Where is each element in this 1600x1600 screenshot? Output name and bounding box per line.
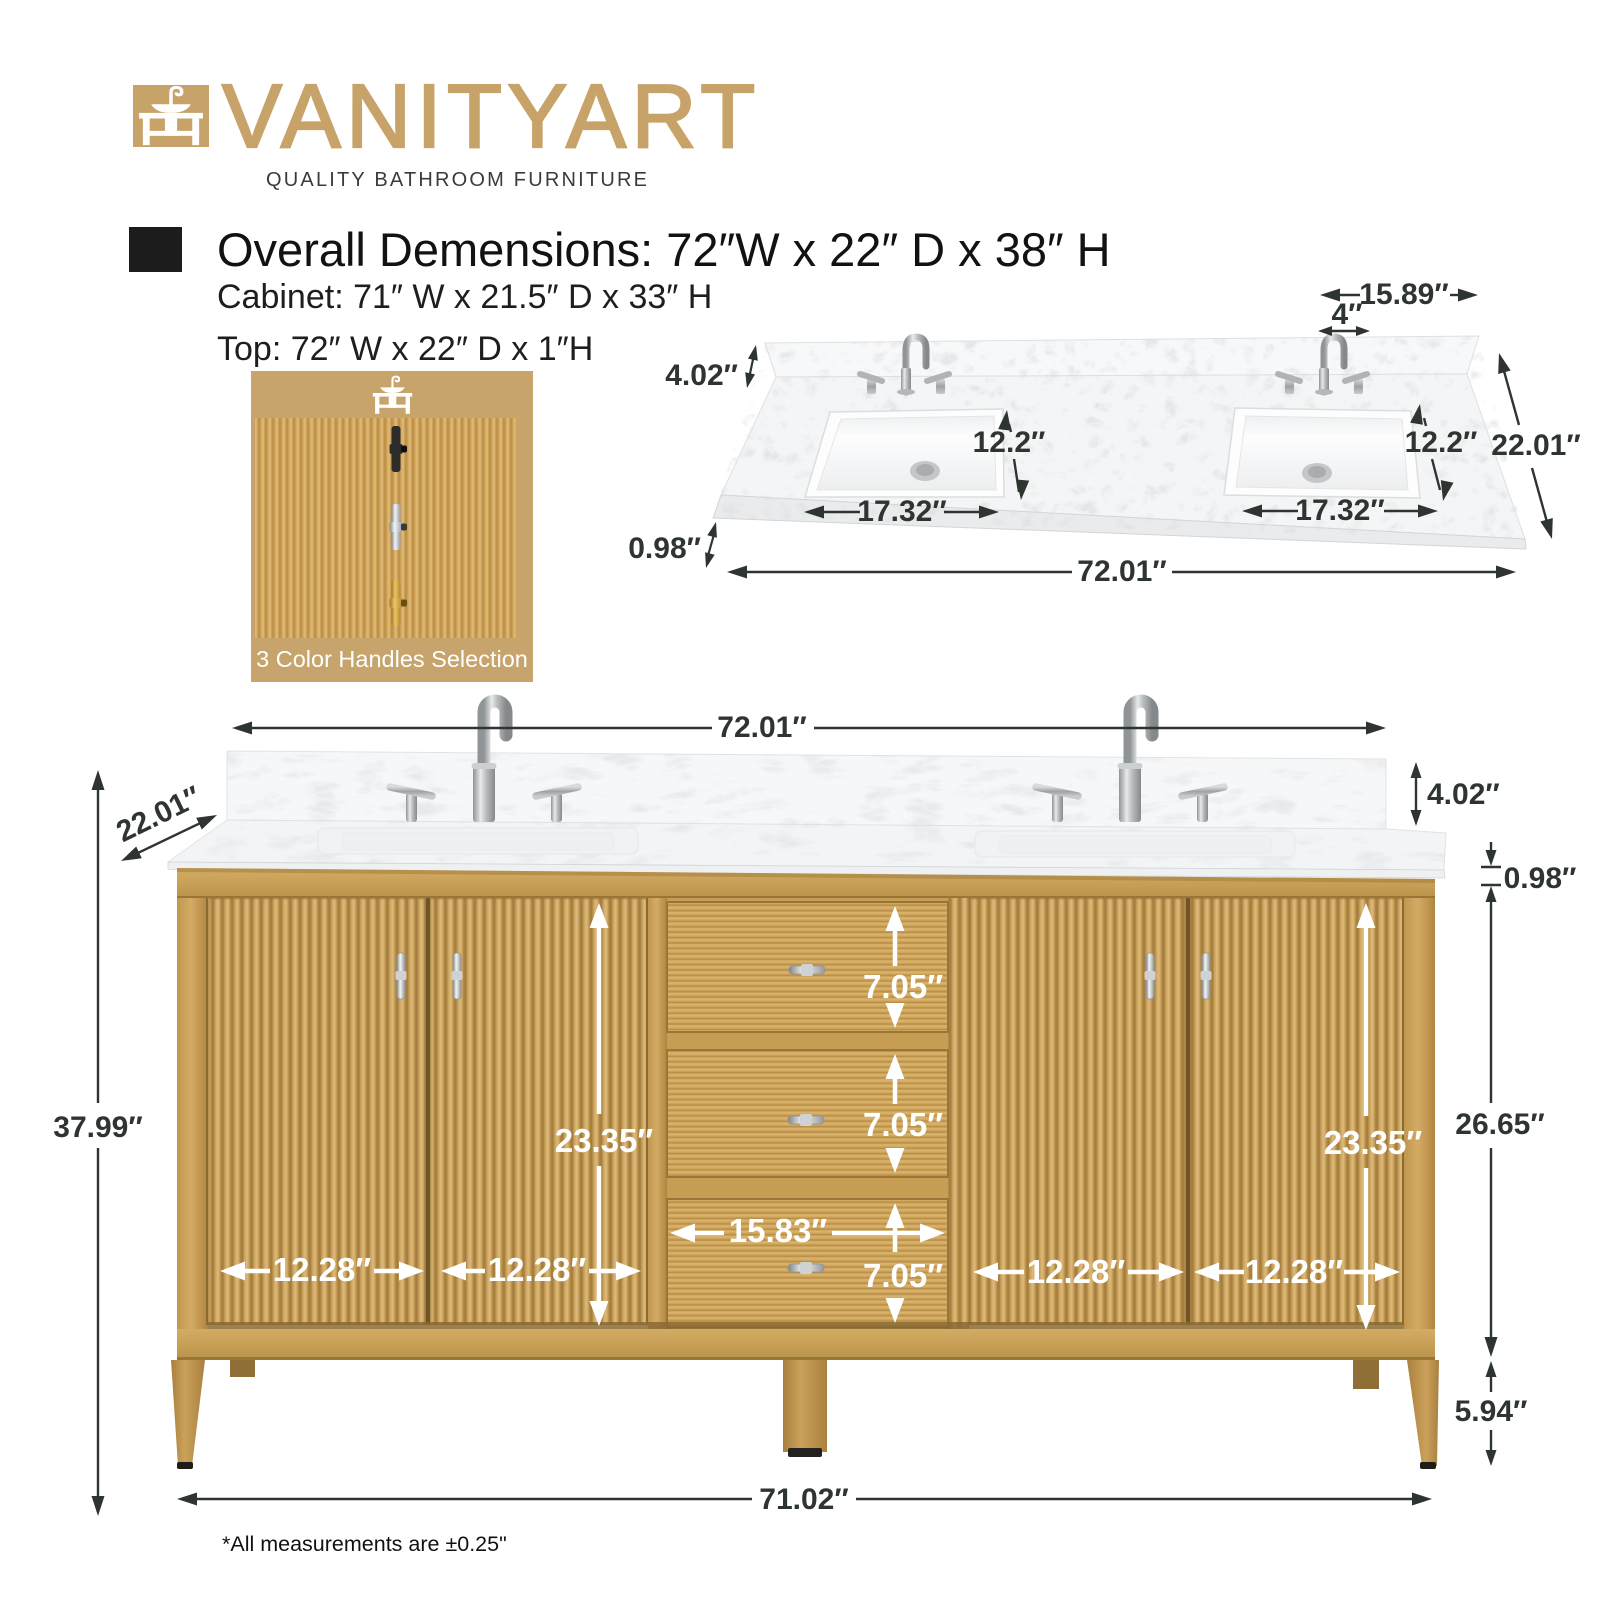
svg-text:3 Color Handles Selection: 3 Color Handles Selection bbox=[256, 646, 528, 672]
svg-text:17.32″: 17.32″ bbox=[857, 495, 946, 528]
svg-text:37.99″: 37.99″ bbox=[53, 1111, 142, 1144]
svg-text:4.02″: 4.02″ bbox=[1427, 778, 1500, 811]
svg-text:12.2″: 12.2″ bbox=[973, 426, 1046, 459]
svg-text:7.05″: 7.05″ bbox=[863, 1106, 943, 1143]
svg-text:15.89″: 15.89″ bbox=[1359, 278, 1448, 311]
svg-text:Top: 72″ W x 22″ D x 1″H: Top: 72″ W x 22″ D x 1″H bbox=[217, 330, 593, 368]
svg-text:*All measurements are ±0.25": *All measurements are ±0.25" bbox=[222, 1532, 507, 1556]
svg-text:12.2″: 12.2″ bbox=[1405, 426, 1478, 459]
svg-text:12.28″: 12.28″ bbox=[1245, 1253, 1344, 1290]
svg-text:26.65″: 26.65″ bbox=[1455, 1108, 1544, 1141]
svg-text:23.35″: 23.35″ bbox=[555, 1122, 654, 1159]
svg-text:VANITYART: VANITYART bbox=[222, 67, 761, 167]
svg-text:Cabinet: 71″ W x 21.5″ D x 33″: Cabinet: 71″ W x 21.5″ D x 33″ H bbox=[217, 278, 712, 316]
svg-text:Overall Demensions: 72″W x 22″: Overall Demensions: 72″W x 22″ D x 38″ H bbox=[217, 223, 1111, 276]
svg-text:22.01″: 22.01″ bbox=[1491, 429, 1580, 462]
svg-text:0.98″: 0.98″ bbox=[628, 532, 701, 565]
svg-text:72.01″: 72.01″ bbox=[717, 711, 806, 744]
svg-text:QUALITY BATHROOM FURNITURE: QUALITY BATHROOM FURNITURE bbox=[266, 169, 649, 191]
svg-text:5.94″: 5.94″ bbox=[1455, 1395, 1528, 1428]
svg-text:17.32″: 17.32″ bbox=[1295, 494, 1384, 527]
svg-text:7.05″: 7.05″ bbox=[863, 1257, 943, 1294]
svg-text:23.35″: 23.35″ bbox=[1324, 1124, 1423, 1161]
svg-text:72.01″: 72.01″ bbox=[1077, 555, 1166, 588]
svg-text:4.02″: 4.02″ bbox=[665, 359, 738, 392]
svg-text:12.28″: 12.28″ bbox=[1027, 1253, 1126, 1290]
svg-text:7.05″: 7.05″ bbox=[863, 968, 943, 1005]
svg-text:71.02″: 71.02″ bbox=[759, 1483, 848, 1516]
svg-text:0.98″: 0.98″ bbox=[1504, 862, 1577, 895]
svg-text:4″: 4″ bbox=[1331, 298, 1362, 331]
svg-text:12.28″: 12.28″ bbox=[273, 1251, 372, 1288]
svg-text:12.28″: 12.28″ bbox=[488, 1251, 587, 1288]
svg-text:15.83″: 15.83″ bbox=[729, 1212, 828, 1249]
